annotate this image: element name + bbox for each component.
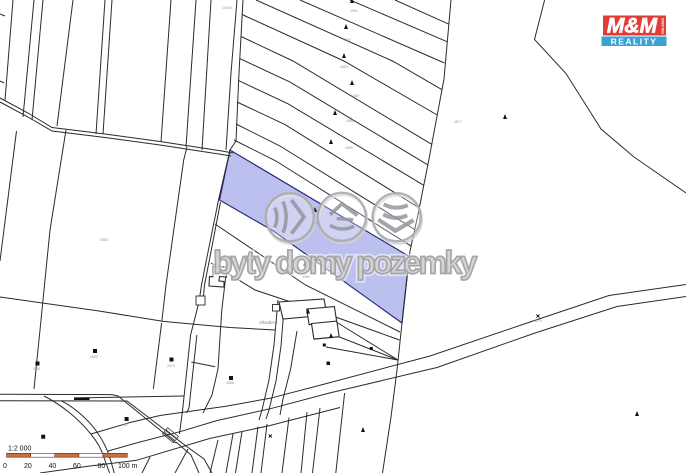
svg-text:4583: 4583	[100, 238, 108, 242]
svg-text:4586: 4586	[346, 119, 354, 123]
svg-text:100 m: 100 m	[118, 463, 138, 470]
svg-text:40: 40	[49, 463, 57, 470]
svg-text:Vlkadlem: Vlkadlem	[259, 320, 278, 325]
svg-text:M&M: M&M	[607, 15, 658, 38]
svg-text:REALITY: REALITY	[611, 36, 658, 46]
svg-text:0: 0	[3, 463, 7, 470]
svg-text:byty domy pozemky: byty domy pozemky	[213, 245, 477, 281]
svg-text:452: 452	[122, 423, 128, 427]
svg-text:4590: 4590	[343, 38, 351, 42]
svg-text:HOLDING: HOLDING	[661, 18, 665, 34]
svg-text:4577: 4577	[454, 120, 462, 124]
svg-text:4585: 4585	[345, 146, 353, 150]
svg-text:80: 80	[98, 463, 106, 470]
svg-text:4576: 4576	[534, 319, 542, 323]
svg-text:4579: 4579	[167, 364, 175, 368]
svg-text:4589: 4589	[340, 65, 348, 69]
svg-text:1:2 000: 1:2 000	[8, 446, 31, 453]
svg-text:20: 20	[24, 463, 32, 470]
svg-text:60: 60	[73, 463, 81, 470]
svg-text:4588: 4588	[226, 381, 234, 385]
svg-text:4582: 4582	[90, 355, 98, 359]
svg-text:4581: 4581	[33, 367, 41, 371]
svg-text:4591: 4591	[350, 9, 358, 13]
svg-text:4587: 4587	[352, 94, 360, 98]
svg-text:1460/1: 1460/1	[222, 6, 233, 10]
